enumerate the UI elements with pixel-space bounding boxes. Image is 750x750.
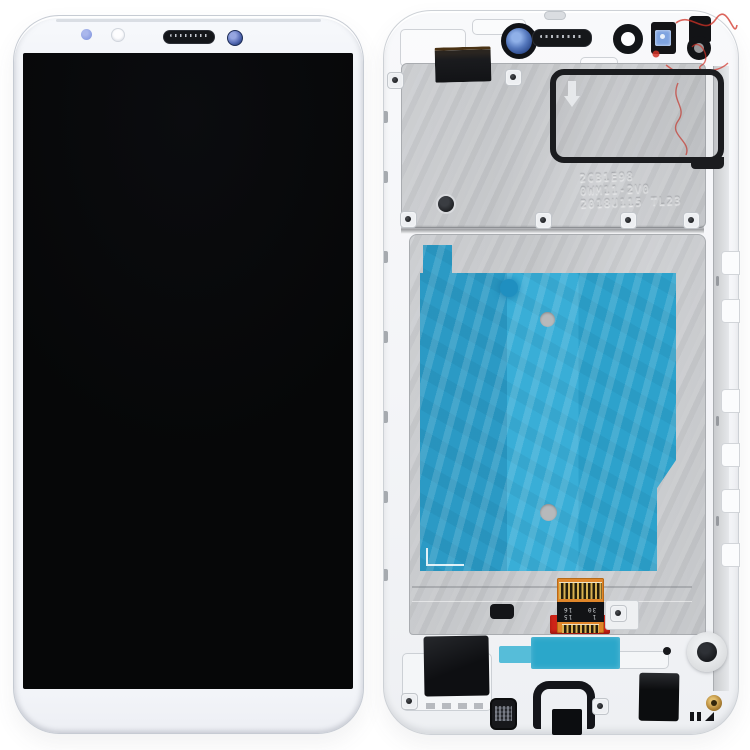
frame-molding xyxy=(544,11,566,20)
gold-screw xyxy=(706,695,722,711)
screw-hole xyxy=(592,698,609,715)
flex-marking-right: 1 30 xyxy=(587,606,596,620)
frame-notch xyxy=(384,251,388,263)
screw-hole xyxy=(505,69,522,86)
flex-marking-left: 15 16 xyxy=(563,606,572,620)
product-photo: 2CB1E98 0WM11-2V0 2018U115 TL23 15 16 1 … xyxy=(0,0,750,750)
adhesive-pad xyxy=(531,637,620,669)
frame-notch xyxy=(384,331,388,343)
frame-clip xyxy=(721,443,740,467)
lcd-flex-cable: 15 16 1 30 xyxy=(550,578,612,636)
blue-adhesive-film xyxy=(420,245,676,571)
light-sensor-window xyxy=(112,29,124,41)
frame-clip xyxy=(721,299,740,323)
film-hole xyxy=(540,312,555,327)
screw-hole xyxy=(620,212,637,229)
plate-seam xyxy=(401,225,704,234)
film-dark-spot xyxy=(500,279,518,297)
top-edge-rim xyxy=(56,19,321,22)
frame-notch xyxy=(384,491,388,503)
frame-back-view: 2CB1E98 0WM11-2V0 2018U115 TL23 15 16 1 … xyxy=(383,10,739,735)
screw-hole xyxy=(683,212,700,229)
speaker-mesh-component xyxy=(490,698,517,730)
plate-hole xyxy=(438,196,454,212)
connector-pins-bottom xyxy=(562,624,599,633)
frame-notch xyxy=(384,171,388,183)
flex-ribbon: 15 16 1 30 xyxy=(557,578,604,633)
earpiece-slot xyxy=(532,29,592,47)
shield-outline-step xyxy=(691,157,724,169)
connector-pins-top xyxy=(559,582,602,599)
frame-clip xyxy=(721,489,740,513)
rail-slot xyxy=(716,516,719,526)
shield-outline-tape xyxy=(550,69,724,163)
screw-hole xyxy=(610,605,627,622)
frame-clip xyxy=(721,389,740,413)
screw-hole xyxy=(387,72,404,89)
frame-notch xyxy=(384,111,388,123)
corner-mark-triangle xyxy=(705,712,714,721)
lcd-front-view xyxy=(13,15,364,734)
red-marker-line xyxy=(656,77,716,157)
etched-serial-label: 2CB1E98 0WM11-2V0 2018U115 TL23 xyxy=(579,169,682,212)
screw-dot xyxy=(663,647,671,655)
corner-mark-bar xyxy=(690,712,694,721)
bracket-core xyxy=(552,709,582,735)
screw-hole xyxy=(535,212,552,229)
adhesive-pad-tab xyxy=(499,646,532,663)
contact-dashes xyxy=(426,703,490,709)
round-component xyxy=(687,632,727,672)
film-corner-mark xyxy=(426,548,464,566)
rail-slot xyxy=(716,416,719,426)
corner-mark-bar xyxy=(697,712,701,721)
lcd-screen-off xyxy=(23,53,353,689)
sensor-flex-pad xyxy=(435,46,492,82)
front-camera-lens xyxy=(227,30,243,46)
frame-notch xyxy=(384,411,388,423)
black-component-right xyxy=(639,673,680,722)
small-black-component xyxy=(490,604,514,619)
down-arrow-marking xyxy=(564,81,580,111)
frame-notch xyxy=(384,569,388,581)
earpiece-grille xyxy=(163,30,215,44)
flex-black-band: 15 16 1 30 xyxy=(557,602,604,622)
film-shade-bands xyxy=(420,245,676,571)
rail-slot xyxy=(716,276,719,286)
frame-clip xyxy=(721,251,740,275)
screw-hole xyxy=(401,693,418,710)
proximity-sensor-window xyxy=(81,29,92,40)
black-component-left xyxy=(423,635,489,696)
frame-clip xyxy=(721,543,740,567)
bottom-bracket xyxy=(533,681,595,729)
film-hole xyxy=(540,504,557,521)
screw-hole xyxy=(400,211,417,228)
